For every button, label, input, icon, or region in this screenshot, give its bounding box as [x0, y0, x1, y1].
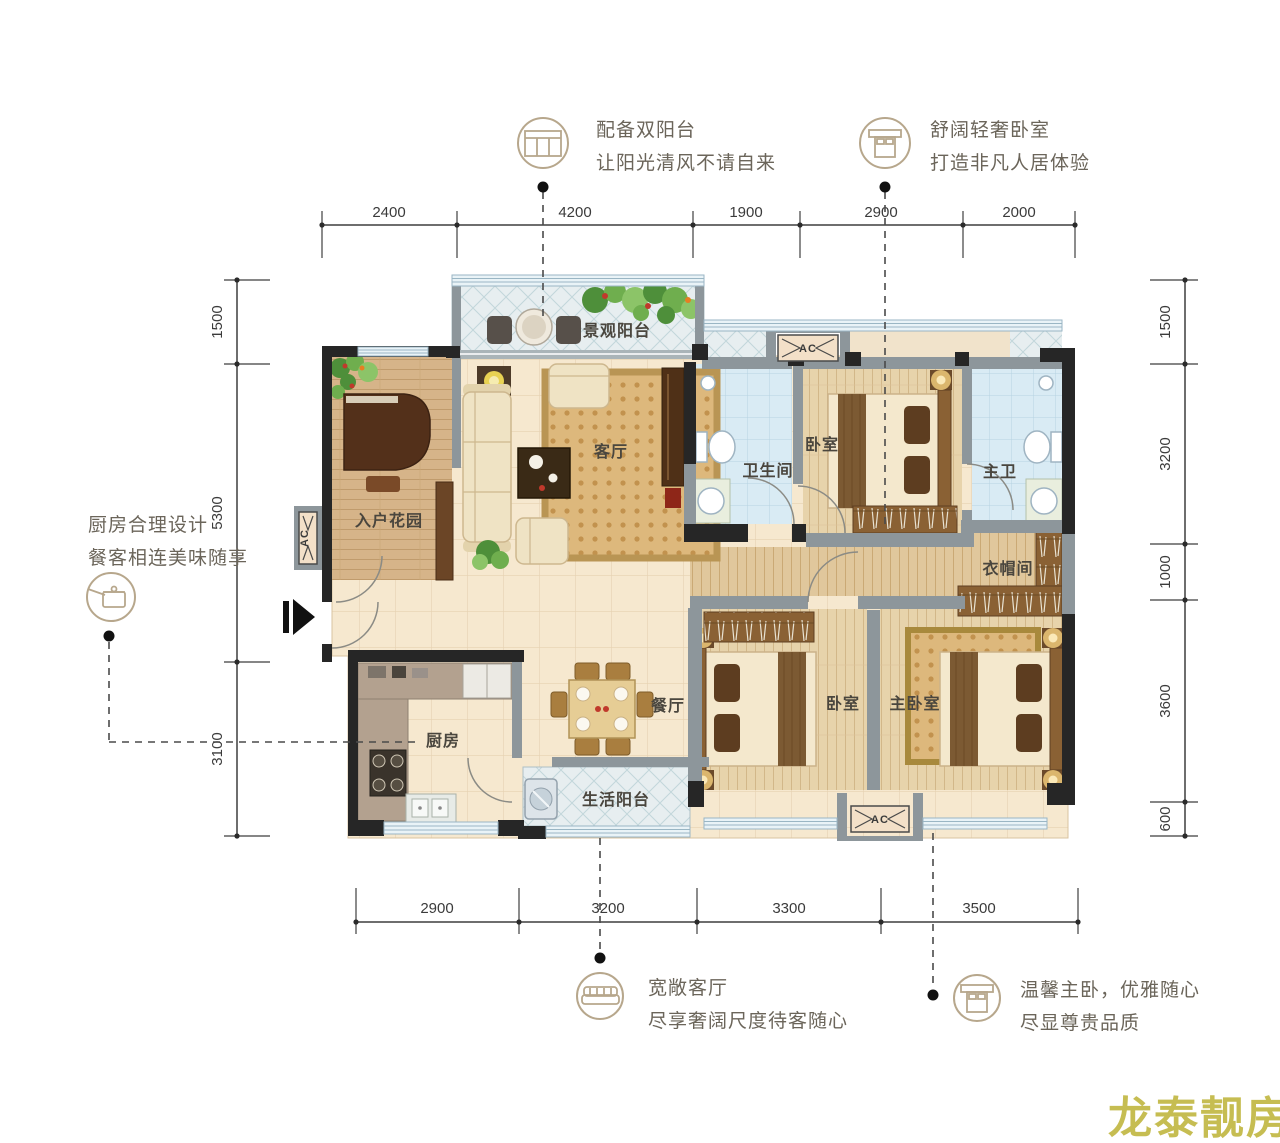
kitchen-label: 厨房	[426, 731, 460, 750]
cloakroom-label: 衣帽间	[982, 559, 1033, 578]
ac-label-top: AC	[799, 343, 817, 355]
dim-right-5: 600	[1157, 806, 1174, 831]
living-room-label: 客厅	[594, 442, 628, 461]
annotation-subtitle: 打造非凡人居体验	[930, 152, 1090, 174]
entrance-arrow-icon	[283, 599, 315, 635]
ac-unit-bottom: AC	[851, 806, 909, 832]
window-bay-left	[704, 818, 837, 829]
coffee-table	[518, 448, 570, 498]
dim-bottom-3: 3300	[772, 900, 805, 917]
kitchen-icon	[88, 587, 125, 608]
life-balcony-label: 生活阳台	[582, 790, 650, 809]
balcony-icon	[525, 131, 561, 156]
window-bay-right	[923, 818, 1047, 829]
watermark-logo: 龙泰靓房	[1108, 1094, 1280, 1143]
wardrobe-top-bedroom	[853, 506, 957, 533]
bed-icon	[869, 130, 901, 157]
corridor-floor	[690, 547, 974, 596]
dim-bottom-4: 3500	[962, 900, 995, 917]
sofa-icon	[582, 987, 619, 1004]
dim-right-3: 1000	[1157, 555, 1174, 588]
dim-top-2: 4200	[558, 204, 591, 221]
dim-top-5: 2000	[1002, 204, 1035, 221]
annotation-subtitle: 让阳光清风不请自来	[596, 152, 776, 174]
window-top-right	[704, 320, 1062, 331]
cloakroom-rack-vertical	[1036, 528, 1062, 586]
dim-top-3: 1900	[729, 204, 762, 221]
entry-cabinet	[436, 482, 453, 580]
dim-bottom-2: 3200	[591, 900, 624, 917]
annotation-title: 温馨主卧，优雅随心	[1020, 979, 1200, 1001]
master-bedroom-label: 主卧室	[889, 694, 940, 713]
ac-label-left: AC	[299, 529, 311, 547]
annotation-subtitle: 尽享奢阔尺度待客随心	[648, 1010, 848, 1032]
dim-left-3: 3100	[209, 732, 226, 765]
dim-right-2: 3200	[1157, 437, 1174, 470]
window-life-balcony	[546, 826, 690, 837]
floor-plan-svg: AC AC AC 景观阳台 入户花园 客厅 卫生间 卧室 主卫 衣帽间 餐厅 厨…	[0, 0, 1280, 1143]
dim-top-1: 2400	[372, 204, 405, 221]
wardrobe-second-bedroom	[704, 612, 814, 642]
annotation-master-suite: 温馨主卧，优雅随心 尽显尊贵品质	[954, 975, 1200, 1034]
window-kitchen	[384, 822, 498, 834]
bed-second	[692, 628, 816, 790]
ac-unit-top: AC	[778, 335, 838, 361]
annotation-title: 宽敞客厅	[648, 977, 728, 999]
dim-bottom-1: 2900	[420, 900, 453, 917]
bed-icon	[961, 985, 993, 1012]
dim-top-4: 2900	[864, 204, 897, 221]
bed-master	[940, 628, 1064, 790]
entry-garden-label: 入户花园	[355, 511, 423, 530]
armchair-bottom	[516, 518, 568, 564]
master-bath-label: 主卫	[983, 462, 1017, 481]
bathroom-label: 卫生间	[742, 461, 793, 480]
dim-left-2: 5300	[209, 496, 226, 529]
cloakroom-rack-horizontal	[958, 586, 1062, 616]
annotation-double-balcony: 配备双阳台 让阳光清风不请自来	[518, 118, 776, 174]
view-balcony-label: 景观阳台	[583, 321, 651, 340]
armchair-top	[549, 364, 609, 408]
annotation-wide-living: 宽敞客厅 尽享奢阔尺度待客随心	[577, 973, 848, 1032]
dim-right-4: 3600	[1157, 684, 1174, 717]
bedroom-second-label: 卧室	[826, 694, 860, 713]
washing-machine	[525, 779, 557, 819]
annotation-title: 舒阔轻奢卧室	[930, 119, 1050, 141]
ac-unit-left: AC	[299, 512, 317, 564]
floor-plan-page: AC AC AC 景观阳台 入户花园 客厅 卫生间 卧室 主卫 衣帽间 餐厅 厨…	[0, 0, 1280, 1143]
annotation-subtitle: 餐客相连美味随享	[88, 547, 248, 569]
window-entry	[358, 347, 428, 356]
annotation-title: 配备双阳台	[596, 119, 696, 141]
window-view-balcony	[452, 275, 704, 286]
annotation-cozy-bedroom: 舒阔轻奢卧室 打造非凡人居体验	[860, 118, 1090, 174]
dim-left-1: 1500	[209, 305, 226, 338]
dining-room-label: 餐厅	[650, 696, 685, 715]
sofa	[463, 384, 511, 552]
annotation-subtitle: 尽显尊贵品质	[1020, 1012, 1140, 1034]
dim-right-1: 1500	[1157, 305, 1174, 338]
bedroom-top-label: 卧室	[805, 435, 839, 454]
ac-label-bottom: AC	[871, 814, 889, 826]
annotation-title: 厨房合理设计	[88, 514, 208, 536]
